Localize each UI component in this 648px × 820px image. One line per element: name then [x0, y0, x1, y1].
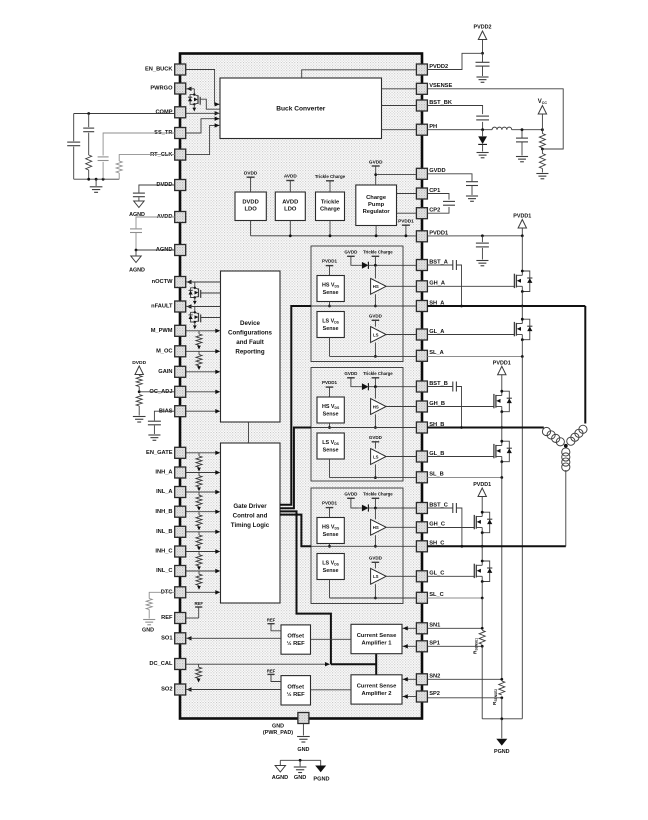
svg-text:Gate Driver: Gate Driver [233, 503, 267, 510]
svg-text:VSENSE: VSENSE [429, 83, 452, 89]
svg-text:M_OC: M_OC [156, 349, 172, 355]
svg-text:PVDD2: PVDD2 [474, 24, 492, 30]
svg-text:LS VDS: LS VDS [322, 319, 339, 325]
svg-text:CP2: CP2 [429, 208, 440, 214]
svg-text:Sense: Sense [323, 568, 339, 574]
svg-text:PGND: PGND [313, 777, 329, 783]
svg-text:REF: REF [267, 668, 276, 673]
svg-text:HS: HS [373, 525, 379, 530]
svg-text:PVDD1: PVDD1 [398, 218, 414, 223]
svg-text:SO1: SO1 [161, 636, 172, 642]
svg-text:RSENSE2: RSENSE2 [492, 689, 498, 705]
svg-text:GND: GND [294, 775, 306, 781]
svg-text:REF: REF [195, 601, 204, 606]
svg-text:GND: GND [272, 724, 284, 730]
svg-text:GL_B: GL_B [429, 451, 444, 457]
svg-text:GVDD: GVDD [369, 314, 383, 319]
svg-text:LS: LS [373, 332, 379, 337]
svg-text:½ REF: ½ REF [287, 640, 305, 647]
svg-text:PWRGO: PWRGO [150, 86, 173, 92]
svg-text:BST_A: BST_A [429, 259, 448, 265]
svg-text:REF: REF [267, 618, 276, 623]
svg-text:EN_BUCK: EN_BUCK [145, 67, 173, 73]
svg-text:LS VDS: LS VDS [322, 440, 339, 446]
svg-text:Current Sense: Current Sense [357, 633, 397, 639]
svg-text:½ REF: ½ REF [287, 691, 305, 698]
svg-text:SL_B: SL_B [429, 472, 444, 478]
svg-text:GH_A: GH_A [429, 281, 445, 287]
svg-text:Current Sense: Current Sense [357, 684, 397, 690]
svg-text:Amplifier 1: Amplifier 1 [362, 641, 393, 647]
svg-text:DVDD: DVDD [132, 360, 146, 366]
svg-text:BST_C: BST_C [429, 502, 448, 508]
svg-text:Offset: Offset [287, 685, 304, 691]
svg-text:GVDD: GVDD [369, 159, 383, 164]
svg-text:nFAULT: nFAULT [151, 304, 173, 310]
svg-text:AVDD: AVDD [282, 200, 298, 206]
svg-text:SP2: SP2 [429, 691, 440, 697]
svg-text:Pump: Pump [368, 202, 385, 208]
svg-text:LS VDS: LS VDS [322, 561, 339, 567]
svg-text:Reporting: Reporting [235, 349, 264, 356]
svg-text:AGND: AGND [129, 268, 145, 274]
svg-text:PVDD2: PVDD2 [429, 64, 448, 70]
svg-text:Offset: Offset [287, 634, 304, 640]
svg-text:Sense: Sense [323, 448, 339, 454]
svg-text:Buck Converter: Buck Converter [276, 106, 326, 113]
svg-text:DVDD: DVDD [242, 200, 258, 206]
svg-text:DVDD: DVDD [244, 170, 258, 175]
svg-text:INL_B: INL_B [156, 529, 172, 535]
svg-text:LS: LS [373, 454, 379, 459]
svg-text:LDO: LDO [244, 207, 257, 213]
svg-text:AVDD: AVDD [284, 174, 298, 179]
svg-text:GL_C: GL_C [429, 571, 444, 577]
svg-text:PVDD1: PVDD1 [322, 380, 338, 385]
svg-text:GVDD: GVDD [344, 371, 358, 376]
svg-text:and Fault: and Fault [236, 339, 264, 346]
svg-text:Sense: Sense [323, 412, 339, 418]
svg-text:BST_BK: BST_BK [429, 100, 453, 106]
svg-text:Trickle Charge: Trickle Charge [363, 371, 393, 376]
svg-text:Regulator: Regulator [363, 209, 391, 215]
svg-text:PVDD1: PVDD1 [322, 259, 338, 264]
svg-text:GND: GND [297, 747, 309, 753]
svg-text:COMP: COMP [155, 110, 172, 116]
svg-text:DC_CAL: DC_CAL [149, 661, 173, 667]
svg-text:HS: HS [373, 404, 379, 409]
svg-text:GH_C: GH_C [429, 522, 445, 528]
svg-text:Amplifier 2: Amplifier 2 [362, 691, 392, 697]
svg-text:PVDD1: PVDD1 [322, 501, 338, 506]
svg-text:nOCTW: nOCTW [152, 279, 173, 285]
svg-text:GAIN: GAIN [158, 369, 172, 375]
svg-text:Charge: Charge [366, 195, 387, 201]
svg-text:SP1: SP1 [429, 641, 440, 647]
svg-text:Trickle Charge: Trickle Charge [315, 174, 346, 179]
svg-text:PH: PH [429, 124, 437, 130]
svg-text:SO2: SO2 [161, 687, 172, 693]
svg-text:HS VDS: HS VDS [322, 525, 340, 531]
svg-text:GND: GND [142, 628, 154, 634]
svg-text:AGND: AGND [272, 775, 288, 781]
svg-text:INL_A: INL_A [156, 489, 172, 495]
svg-text:GL_A: GL_A [429, 329, 444, 335]
svg-text:(PWR_PAD): (PWR_PAD) [263, 730, 293, 736]
svg-text:HS VDS: HS VDS [322, 283, 340, 289]
svg-text:Trickle Charge: Trickle Charge [363, 250, 393, 255]
svg-text:Trickle: Trickle [321, 200, 340, 206]
svg-text:GH_B: GH_B [429, 401, 445, 407]
svg-text:HS: HS [373, 284, 379, 289]
svg-text:INL_C: INL_C [156, 568, 172, 574]
svg-text:SN2: SN2 [429, 674, 440, 680]
svg-text:Sense: Sense [323, 326, 339, 332]
svg-text:GVDD: GVDD [369, 435, 383, 440]
svg-text:BST_B: BST_B [429, 381, 448, 387]
svg-text:Trickle Charge: Trickle Charge [363, 492, 393, 497]
svg-text:Sense: Sense [323, 290, 339, 296]
svg-text:LS: LS [373, 574, 379, 579]
svg-text:Timing Logic: Timing Logic [231, 522, 270, 529]
svg-text:GVDD: GVDD [344, 492, 358, 497]
svg-text:GVDD: GVDD [344, 250, 358, 255]
svg-text:VCC: VCC [538, 99, 548, 105]
svg-text:M_PWM: M_PWM [151, 328, 173, 334]
svg-text:Charge: Charge [320, 207, 341, 213]
svg-text:Device: Device [240, 320, 261, 327]
svg-text:SN1: SN1 [429, 623, 440, 629]
svg-text:INH_C: INH_C [155, 549, 172, 555]
svg-text:HS VDS: HS VDS [322, 404, 340, 410]
svg-text:PGND: PGND [494, 749, 510, 755]
svg-text:CP1: CP1 [429, 188, 440, 194]
svg-text:REF: REF [161, 615, 173, 621]
svg-text:Control and: Control and [233, 513, 268, 520]
svg-text:SL_C: SL_C [429, 592, 444, 598]
svg-text:LDO: LDO [284, 207, 297, 213]
svg-text:GVDD: GVDD [429, 168, 445, 174]
svg-text:INH_B: INH_B [155, 509, 172, 515]
svg-text:SL_A: SL_A [429, 350, 444, 356]
svg-text:EN_GATE: EN_GATE [146, 450, 173, 456]
svg-text:Sense: Sense [323, 532, 339, 538]
svg-text:INH_A: INH_A [155, 470, 172, 476]
svg-text:Configurations: Configurations [228, 330, 273, 337]
svg-text:GVDD: GVDD [369, 556, 383, 561]
